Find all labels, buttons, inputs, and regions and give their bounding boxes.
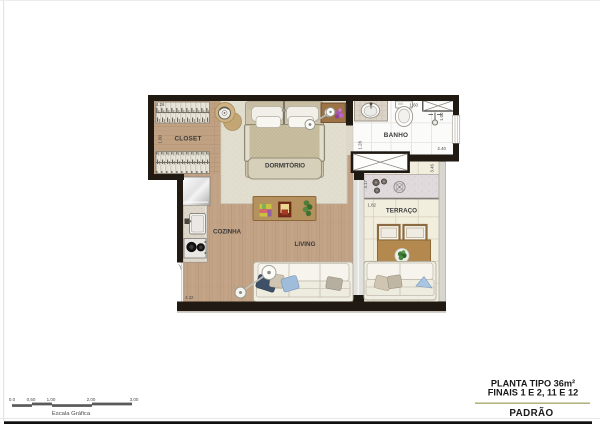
- svg-text:0,50: 0,50: [27, 397, 36, 402]
- svg-text:2.40: 2.40: [438, 146, 447, 151]
- svg-text:CLOSET: CLOSET: [174, 135, 201, 142]
- svg-text:3.17: 3.17: [363, 180, 368, 189]
- svg-text:1.82: 1.82: [368, 203, 377, 208]
- svg-text:TERRAÇO: TERRAÇO: [386, 207, 417, 214]
- svg-text:1.28: 1.28: [358, 141, 363, 150]
- svg-text:3.46: 3.46: [430, 164, 435, 173]
- svg-text:4.26: 4.26: [156, 102, 165, 107]
- svg-text:DORMITÓRIO: DORMITÓRIO: [265, 160, 305, 169]
- svg-text:1.60: 1.60: [410, 103, 419, 108]
- svg-text:0.0: 0.0: [9, 397, 16, 402]
- svg-text:2,00: 2,00: [87, 397, 96, 402]
- svg-text:4.32: 4.32: [185, 295, 194, 300]
- svg-text:PADRÃO: PADRÃO: [509, 408, 553, 419]
- svg-text:1.00: 1.00: [439, 112, 444, 121]
- svg-text:1,00: 1,00: [47, 397, 56, 402]
- svg-text:0.60: 0.60: [344, 104, 348, 111]
- svg-text:3,00: 3,00: [130, 397, 139, 402]
- svg-text:FINAIS 1 E 2, 11 E 12: FINAIS 1 E 2, 11 E 12: [488, 388, 578, 398]
- svg-text:COZINHA: COZINHA: [213, 229, 242, 236]
- svg-text:BANHO: BANHO: [384, 132, 408, 139]
- svg-text:Escala Gráfica: Escala Gráfica: [52, 411, 91, 417]
- svg-text:1.80: 1.80: [158, 135, 163, 144]
- svg-text:LIVING: LIVING: [295, 241, 316, 248]
